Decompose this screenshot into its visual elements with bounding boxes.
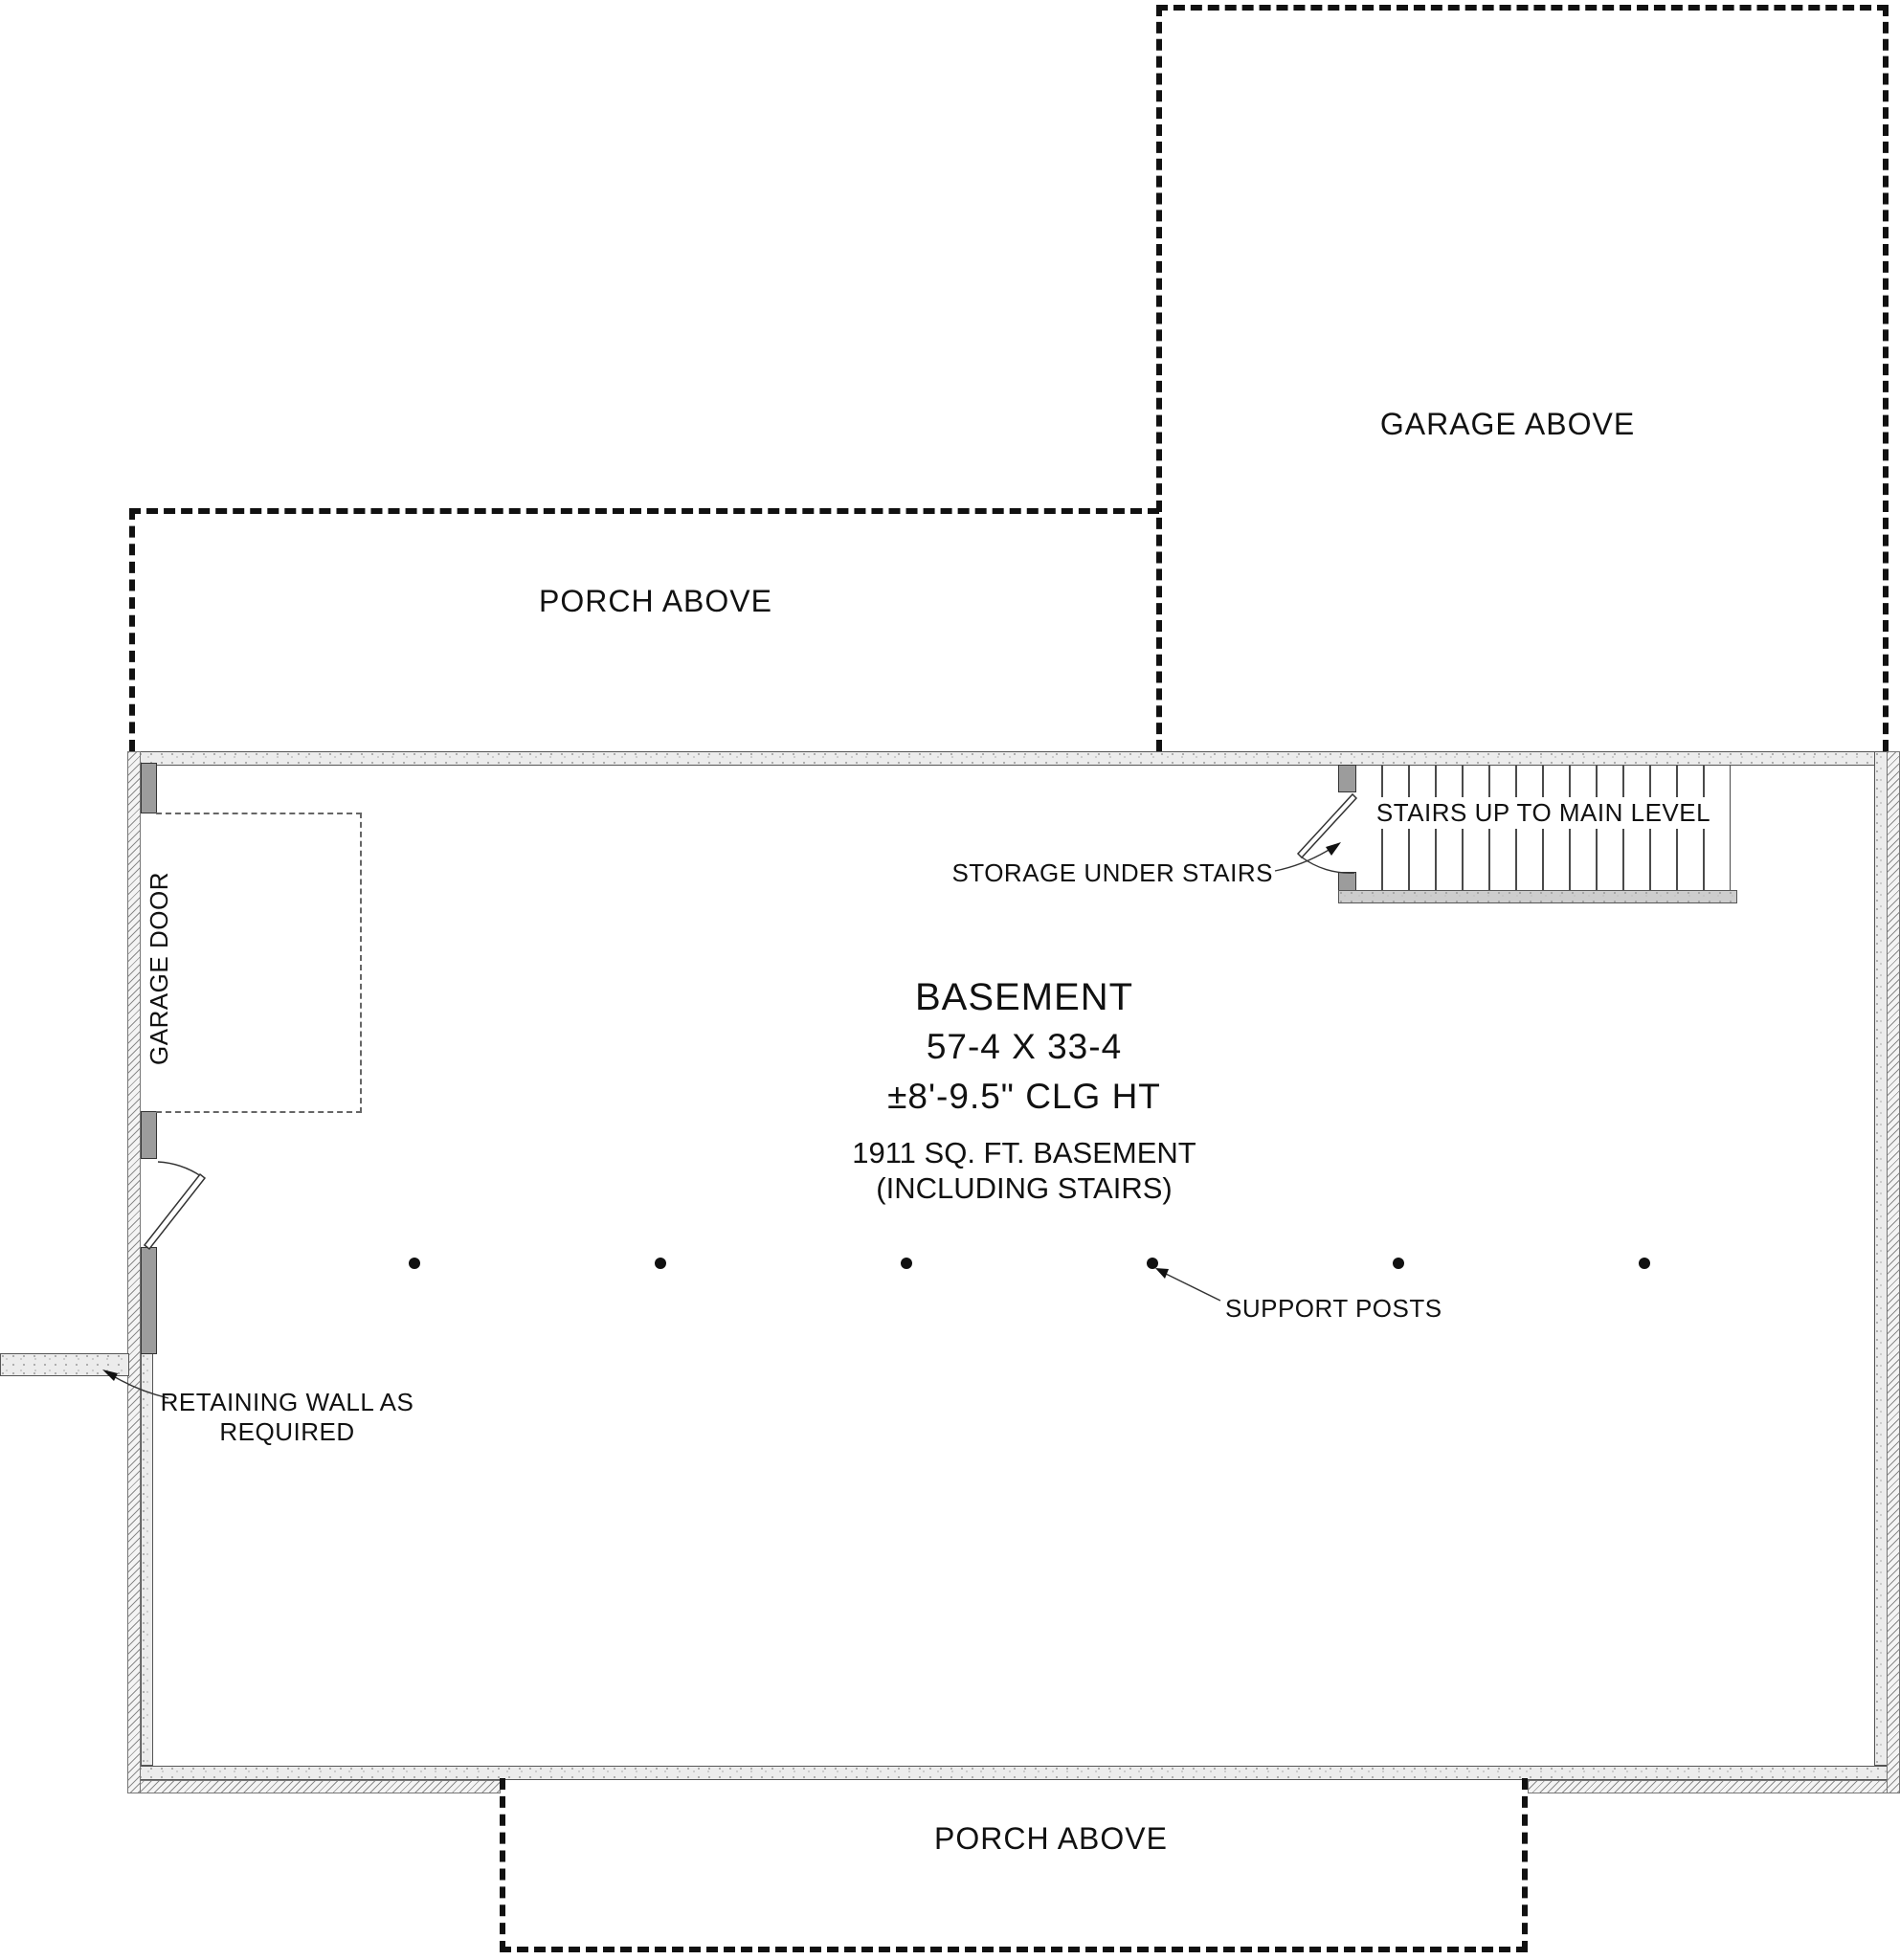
storage-label: STORAGE UNDER STAIRS (951, 858, 1273, 888)
porch-above-bottom-label: PORCH ABOVE (812, 1821, 1290, 1857)
support-posts-leader (1155, 1268, 1220, 1301)
support-post-dot (655, 1258, 666, 1269)
support-post-dot (1147, 1258, 1158, 1269)
garage-above-label: GARAGE ABOVE (1268, 407, 1747, 442)
room-dimensions: 57-4 X 33-4 (737, 1022, 1311, 1072)
title-spacer (737, 1122, 1311, 1135)
porch-above-top-label: PORCH ABOVE (416, 584, 895, 619)
support-posts (409, 1258, 1650, 1269)
support-post-dot (901, 1258, 912, 1269)
retaining-wall-label-line1: RETAINING WALL AS (96, 1388, 479, 1417)
support-post-dot (1393, 1258, 1404, 1269)
room-title-block: BASEMENT 57-4 X 33-4 ±8'-9.5" CLG HT 191… (737, 972, 1311, 1206)
room-name: BASEMENT (737, 972, 1311, 1022)
retaining-wall-label: RETAINING WALL AS REQUIRED (96, 1388, 479, 1447)
support-posts-label: SUPPORT POSTS (1225, 1294, 1442, 1324)
room-area-line2: (INCLUDING STAIRS) (737, 1170, 1311, 1206)
support-post-dot (1639, 1258, 1650, 1269)
support-post-dot (409, 1258, 420, 1269)
side-door (145, 1162, 205, 1249)
basement-floor-plan: STAIRS UP TO MAIN LEVEL (0, 0, 1900, 1960)
room-area-line1: 1911 SQ. FT. BASEMENT (737, 1135, 1311, 1170)
retaining-wall-label-line2: REQUIRED (96, 1417, 479, 1447)
room-ceiling-height: ±8'-9.5" CLG HT (737, 1072, 1311, 1122)
garage-door-label: GARAGE DOOR (145, 825, 175, 1112)
